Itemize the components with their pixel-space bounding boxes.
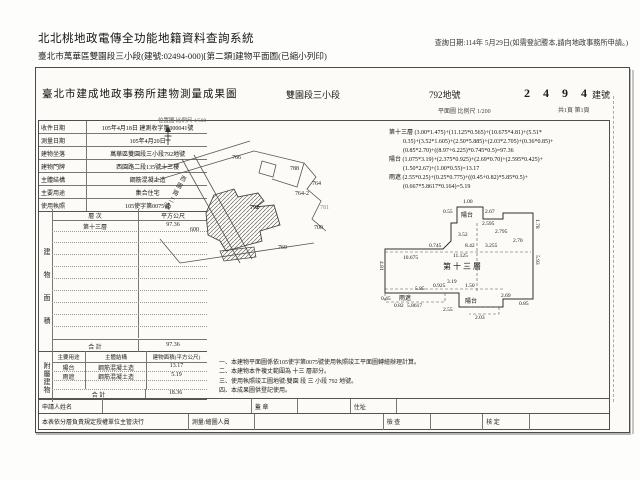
table-row-empty: [52, 291, 207, 303]
address-blank: [397, 399, 609, 414]
floor-label: 第十三層: [443, 261, 483, 272]
lot-number: 764-2: [295, 191, 309, 197]
surveyor-blank: [255, 414, 384, 430]
formula-line: (1.50*2.67)+(1.00*0.55)=13.17: [389, 165, 607, 174]
annex-use-cell: 陽台: [52, 362, 86, 371]
column-header-annex-area: 建物面積(平方公尺): [147, 351, 206, 362]
notes-block: 一、本建物平面圖係依105使字第0075號使用執照竣工平面圖轉繪辦理計算。 二、…: [219, 359, 497, 396]
system-title: 北北桃地政電傳全功能地籍資料查詢系統: [38, 33, 254, 46]
area-table-vertical-label: 建物面積: [39, 209, 53, 365]
dimension-label: 2.595: [482, 221, 494, 227]
formula-line: 雨遮 (2.55*0.25)+(0.25*0.775)+((0.45+0.82)…: [389, 174, 607, 183]
note-line: 三、使用執照竣工圖地號:雙園 段 三 小段 792 地號。: [219, 378, 497, 387]
dimension-label: 2.795: [495, 229, 507, 235]
column-header-floor: 層 次: [52, 209, 139, 220]
document-subtitle: 臺北市萬華區雙園段三小段(建號:02494-000)[第二類]建物平面圖(已縮小…: [38, 52, 327, 61]
column-header-structure: 主體結構: [86, 351, 147, 362]
surveyor-label: 測量/繪圖人員: [189, 414, 255, 430]
dimension-label: 0.45: [381, 296, 391, 302]
check-blank: [431, 414, 484, 430]
lot-number: 700: [314, 225, 323, 231]
approve-label: 核 定: [483, 414, 530, 430]
scan-page-edge: [632, 70, 634, 434]
building-number: 2 4 9 4: [524, 87, 592, 100]
annex-use-cell: 雨遮: [52, 371, 86, 380]
canopy-label: 雨遮: [399, 293, 411, 302]
seal-blank: [298, 399, 350, 414]
scan-fold-line: [613, 96, 614, 402]
lot-number: 600: [190, 227, 199, 233]
info-label: 建物門牌: [39, 160, 87, 172]
dimension-label: 11.125: [453, 253, 468, 259]
annex-area-cell: 13.17: [147, 362, 206, 371]
floor-cell: 第十三層: [52, 220, 139, 231]
balcony-label: 陽台: [461, 210, 473, 219]
site-location-map: 位置圖 比例尺 1/500: [154, 121, 374, 281]
floor-plan-drawing: 陽台 第十三層 雨遮 陽台 1.00 0.55 2.67 2.595 3.52 …: [381, 199, 609, 351]
dimension-label: 2.55: [443, 307, 453, 313]
note-line: 二、本建物本件複丈範圍為 十三 層部分。: [219, 368, 497, 377]
annex-area-cell: 5.19: [147, 371, 206, 380]
annex-table-vertical-label: 附屬建物: [39, 351, 53, 402]
info-label: 主要用途: [39, 186, 87, 198]
dimension-label: 4.81: [378, 261, 384, 271]
balcony-label: 陽台: [465, 296, 477, 305]
table-row-empty: [52, 327, 207, 338]
annex-building-table: 附屬建物 主要用途 主體結構 建物面積(平方公尺) 陽台 鋼筋混凝土造 13.1…: [39, 351, 207, 400]
north-arrow-icon: [165, 126, 172, 145]
column-header-use: 主要用途: [52, 351, 86, 362]
dimension-label: 0.745: [429, 243, 441, 249]
lot-number: 788: [290, 166, 299, 172]
lot-number: 769: [278, 245, 287, 251]
site-map-drawing: [154, 121, 374, 281]
info-label: 建物坐落: [39, 147, 87, 159]
dimension-label: 5.8617: [407, 303, 422, 309]
dimension-label: 10.675: [403, 255, 418, 261]
form-body: 收件日期 105年4月18日 建測收字第000041號 測量日期 105年4月2…: [38, 120, 610, 430]
approve-blank: [530, 414, 609, 430]
dimension-label: 5.93: [534, 255, 540, 265]
dimension-label: 0.82: [394, 303, 404, 309]
formula-line: 陽台 (1.075*3.19)+(2.375*0.925)+(2.69*0.70…: [389, 156, 607, 165]
approval-row: 本表依分層負責規定授權單位主管決行 測量/繪圖人員 檢 查 核 定: [39, 413, 609, 430]
annex-structure-cell: 鋼筋混凝土造: [86, 362, 147, 371]
applicant-value-blank: [103, 399, 252, 414]
info-label: 收件日期: [39, 121, 87, 133]
table-row-empty: [52, 315, 207, 327]
lot-number: 766: [232, 155, 241, 161]
dimension-label: 3.52: [458, 232, 468, 238]
floor-plan-outline: [381, 199, 609, 351]
formula-line: 第十三層 (3.00*1.475)+(11.125*0.565)+(10.675…: [389, 129, 607, 138]
land-registry-query-screen: { "header": { "system_title": "北北桃地政電傳全功…: [0, 0, 640, 480]
formula-line: (0.85*2.70)+((8.97+6.225)*0.745*0.5)=97.…: [389, 147, 607, 156]
dimension-label: 3.255: [485, 243, 497, 249]
note-line: 一、本建物平面圖係依105使字第0075號使用執照竣工平面圖轉繪辦理計算。: [219, 359, 497, 368]
land-section: 雙園段三小段: [286, 91, 340, 101]
site-map-caption: 位置圖 比例尺 1/500: [158, 116, 206, 124]
form-title: 臺北市建成地政事務所建物測量成果圖: [42, 89, 238, 101]
building-number-label: 建號: [592, 91, 610, 101]
dimension-label: 2.67: [485, 209, 495, 215]
page-note: 共1頁 第1頁: [558, 108, 590, 115]
land-number: 792地號: [429, 91, 461, 101]
dimension-label: 0.85: [519, 301, 529, 307]
query-date: 查詢日期:114年 5月29日(如需登記謄本,請向地政事務所申請。): [350, 40, 628, 48]
info-label: 測量日期: [39, 134, 87, 146]
seal-label: 蓋 章: [252, 399, 299, 414]
address-label: 住址: [351, 399, 398, 414]
dimension-label: 1.00: [463, 199, 473, 205]
dimension-label: 2.69: [501, 293, 511, 299]
dimension-label: 2.70: [513, 238, 523, 244]
dimension-label: 5.85: [415, 286, 425, 292]
note-line: 四、本成果圖供登記使用。: [219, 387, 497, 396]
annex-structure-cell: 鋼筋混凝土造: [86, 371, 147, 380]
scanned-survey-sheet: 臺北市建成地政事務所建物測量成果圖 雙園段三小段 792地號 2 4 9 4 建…: [35, 67, 630, 433]
delegation-note: 本表依分層負責規定授權單位主管決行: [39, 414, 189, 430]
dimension-label: 0.925: [433, 283, 445, 289]
dimension-label: 2.03: [475, 315, 485, 321]
dimension-label: 1.78: [534, 219, 540, 229]
applicant-label: 申請人姓名: [39, 399, 103, 414]
formula-line: (0.667*5.8617*0.164)=5.19: [389, 183, 607, 192]
formula-line: 0.35)+(3.52*1.605)+(2.50*5.885)+(2.03*2.…: [389, 138, 607, 147]
lot-number: 764: [312, 181, 321, 187]
area-calculation-block: 第十三層 (3.00*1.475)+(11.125*0.565)+(10.675…: [389, 129, 607, 192]
lot-number: 781: [320, 205, 329, 211]
dimension-label: 0.55: [443, 209, 453, 215]
info-label: 主體結構: [39, 173, 87, 185]
check-label: 檢 查: [384, 414, 431, 430]
dimension-label: 3.19: [447, 279, 457, 285]
subject-lot-number: 792: [250, 205, 259, 211]
applicant-row: 申請人姓名 蓋 章 住址: [39, 398, 609, 414]
subject-parcel-shape: [206, 189, 280, 251]
dimension-label: 1.50: [465, 283, 475, 289]
plan-scale-note: 平面圖 比例尺 1/200: [438, 109, 491, 116]
dimension-label: 8.42: [465, 243, 475, 249]
table-row-empty: [52, 303, 207, 315]
